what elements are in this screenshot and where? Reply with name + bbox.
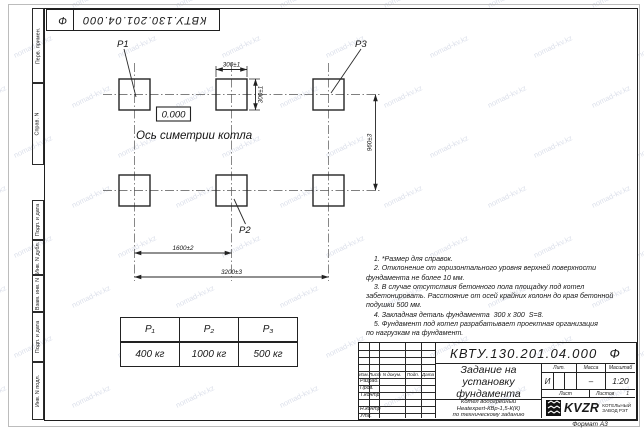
sign-row-prov: Пров. xyxy=(359,385,380,392)
sheets-label: Листов xyxy=(596,391,614,397)
sheet-label: Лист xyxy=(541,390,589,398)
sign-row-nkontr: Н.контр xyxy=(359,406,380,413)
note-line: забетонировать. Расстояние от осей крайн… xyxy=(366,292,638,301)
sign-row-utv: Утв. xyxy=(359,413,380,420)
note-line: 4. Закладная деталь фундамента 300 х 300… xyxy=(366,311,638,320)
sign-row-razrab: Разраб. xyxy=(359,378,380,385)
dim-row-pitch: 960±3 xyxy=(367,133,374,151)
dim-col-pitch: 1600±2 xyxy=(173,245,194,252)
revision-sign-table: Изм. Лист N докум. Подп. Дата Разраб. Пр… xyxy=(359,343,435,418)
axis-title: Ось симетрии котла xyxy=(136,130,252,142)
lit-header: Лит. xyxy=(541,364,576,373)
dim-pad-height: 300±1 xyxy=(258,86,265,103)
note-line: по нагрузкам на фундамент. xyxy=(366,329,638,338)
sheets-cell: Листов 1 xyxy=(589,390,635,398)
mass-value: – xyxy=(576,373,605,390)
note-line: 2. Отклонение от горизонтального уровня … xyxy=(366,264,638,273)
title-line: Задание на xyxy=(461,364,517,376)
note-line: фундамента не более 10 мм. xyxy=(366,274,638,283)
product-description: Котел водогрейный Heatexpert-КВр-1,5-К(К… xyxy=(435,400,541,418)
rev-col-podp: Подп. xyxy=(405,371,421,378)
mass-header: Масса xyxy=(576,364,605,373)
product-line: по техническому заданию xyxy=(453,412,525,418)
centerlines xyxy=(103,63,381,281)
rev-col-list: Лист xyxy=(369,371,379,378)
note-line: 3. В случае отсутствия бетонного пола пл… xyxy=(366,283,638,292)
pad-label-p1: P1 xyxy=(117,39,129,50)
kvzr-logo-text: KVZR xyxy=(564,401,599,415)
rev-col-izm: Изм. xyxy=(359,371,369,378)
load-table-value: 1000 кг xyxy=(180,343,238,366)
sheets-value: 1 xyxy=(626,391,629,397)
company-name: КОТЕЛЬНЫЙ ЗАВОД РЭТ xyxy=(602,403,631,413)
load-table-value: 500 кг xyxy=(239,343,297,366)
lit-cell-empty xyxy=(564,373,576,390)
designation-number: КВТУ.130.201.04.000 xyxy=(450,346,597,361)
designation-letter: Ф xyxy=(609,346,621,361)
title-line: установку xyxy=(462,376,514,388)
company-cell: KVZR КОТЕЛЬНЫЙ ЗАВОД РЭТ xyxy=(541,398,635,418)
company-line: ЗАВОД РЭТ xyxy=(602,408,631,413)
load-table-header: P₂ xyxy=(180,318,238,341)
technical-notes: 1. *Размер для справок. 2. Отклонение от… xyxy=(366,255,638,339)
note-line: 5. Фундамент под котел разрабатывает про… xyxy=(366,320,638,329)
sign-row-tkontr: Т.контр xyxy=(359,392,380,399)
dimension-lines xyxy=(135,70,376,278)
title-block: Изм. Лист N докум. Подп. Дата Разраб. Пр… xyxy=(358,342,637,420)
extension-lines xyxy=(216,66,260,110)
pad-label-p2: P2 xyxy=(239,225,251,236)
pad-label-p3: P3 xyxy=(355,39,367,50)
rev-col-docnum: N докум. xyxy=(379,371,405,378)
note-line: подушки 500 мм. xyxy=(366,301,638,310)
format-label: Формат А3 xyxy=(545,421,635,428)
drawing-sheet: nomad-kv.kznomad-kv.kznomad-kv.kznomad-k… xyxy=(0,0,644,430)
kvzr-logo-mark xyxy=(546,400,561,416)
title-line: фундамента xyxy=(456,388,521,400)
elevation-value: 0.000 xyxy=(162,110,186,121)
load-table-value: 400 кг xyxy=(121,343,179,366)
rev-col-data: Дата xyxy=(421,371,435,378)
load-table: P₁ P₂ P₃ 400 кг 1000 кг 500 кг xyxy=(120,317,298,367)
dim-pad-width: 300±1 xyxy=(223,62,240,69)
scale-value: 1:20 xyxy=(605,373,635,390)
lit-value: И xyxy=(541,373,553,390)
load-table-header: P₃ xyxy=(239,318,297,341)
dim-overall: 3200±3 xyxy=(221,269,242,276)
load-table-header: P₁ xyxy=(121,318,179,341)
sign-row-empty xyxy=(359,399,380,406)
note-line: 1. *Размер для справок. xyxy=(366,255,638,264)
titleblock-designation: КВТУ.130.201.04.000 Ф xyxy=(435,343,635,364)
lit-cell-empty xyxy=(553,373,564,390)
document-title: Задание на установку фундамента xyxy=(435,364,541,400)
scale-header: Масштаб xyxy=(605,364,635,373)
